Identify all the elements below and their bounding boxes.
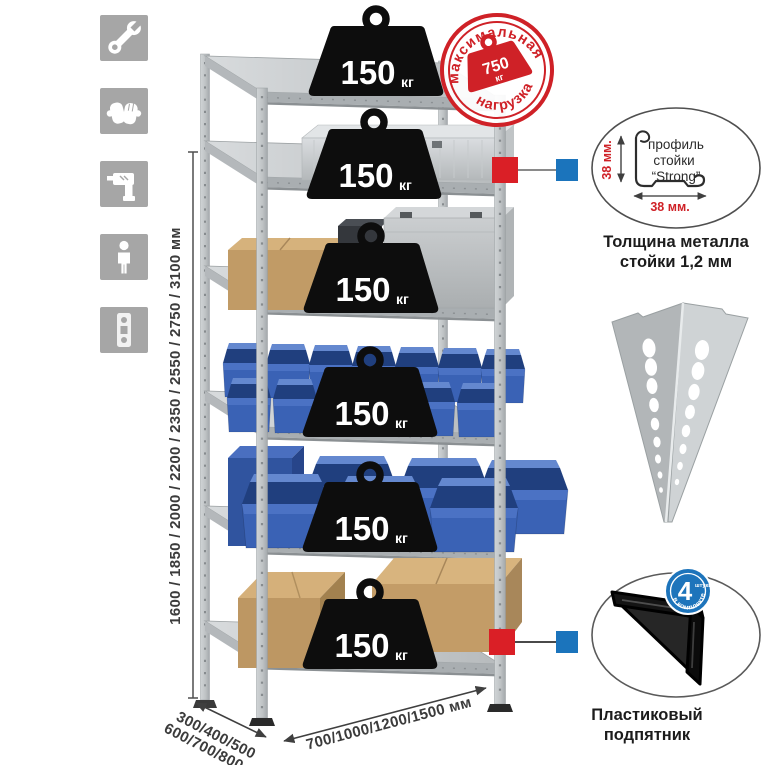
profile-label-2: стойки <box>653 153 694 168</box>
width-label: 700/1000/1200/1500 мм <box>304 694 473 754</box>
callout-foot <box>489 629 578 655</box>
svg-text:кг: кг <box>395 415 408 431</box>
shelving-infographic: 1600 / 1850 / 2000 / 2200 / 2350 / 2550 … <box>0 0 765 765</box>
svg-text:150: 150 <box>334 510 389 547</box>
max-load-stamp: максимальная нагрузка 750 кг <box>428 1 565 138</box>
profile-caption-line2: стойки 1,2 мм <box>586 252 765 272</box>
foot-caption: Пластиковый подпятник <box>557 705 737 745</box>
svg-text:кг: кг <box>399 177 412 193</box>
height-dimension: 1600 / 1850 / 2000 / 2200 / 2350 / 2550 … <box>167 152 198 698</box>
profile-label-1: профиль <box>648 137 704 152</box>
wrench-icon <box>100 15 148 61</box>
scene: 1600 / 1850 / 2000 / 2200 / 2350 / 2550 … <box>0 0 765 765</box>
weight-shelf-1: 150 кг <box>309 9 444 96</box>
kit-badge: 4 штуки в комплекте <box>665 568 712 614</box>
svg-text:кг: кг <box>395 647 408 663</box>
weight-value: 150 <box>340 54 395 91</box>
foot-caption-line1: Пластиковый <box>557 705 737 725</box>
profile-caption: Толщина металла стойки 1,2 мм <box>586 232 765 272</box>
profile-dim-vertical: 38 мм. <box>600 140 614 179</box>
person-icon <box>100 234 148 280</box>
blue-marker-top <box>556 159 578 181</box>
height-dimension-label: 1600 / 1850 / 2000 / 2200 / 2350 / 2550 … <box>167 227 184 625</box>
svg-text:кг: кг <box>395 530 408 546</box>
sidebar <box>100 15 148 353</box>
svg-text:150: 150 <box>335 271 390 308</box>
svg-text:150: 150 <box>334 627 389 664</box>
profile-diagram: 38 мм. 38 мм. профиль стойки “Strong” <box>592 108 760 228</box>
svg-text:150: 150 <box>334 395 389 432</box>
red-marker-top <box>492 157 518 183</box>
angle-post-image <box>612 303 748 522</box>
gloves-icon <box>100 88 148 134</box>
red-marker-bottom <box>489 629 515 655</box>
profile-caption-line1: Толщина металла <box>586 232 765 252</box>
svg-text:кг: кг <box>396 291 409 307</box>
width-dimension: 700/1000/1200/1500 мм <box>284 688 486 753</box>
foot-caption-line2: подпятник <box>557 725 737 745</box>
svg-text:150: 150 <box>338 157 393 194</box>
callout-profile <box>492 157 578 183</box>
badge-small-text: штуки <box>695 583 712 589</box>
weight-unit: кг <box>401 74 414 90</box>
blue-marker-bottom <box>556 631 578 653</box>
drill-icon <box>100 161 148 207</box>
post-strip-icon <box>100 307 148 353</box>
foot-diagram: 4 штуки в комплекте <box>592 568 760 697</box>
profile-label-3: “Strong” <box>652 169 701 184</box>
profile-dim-horizontal: 38 мм. <box>650 200 689 214</box>
